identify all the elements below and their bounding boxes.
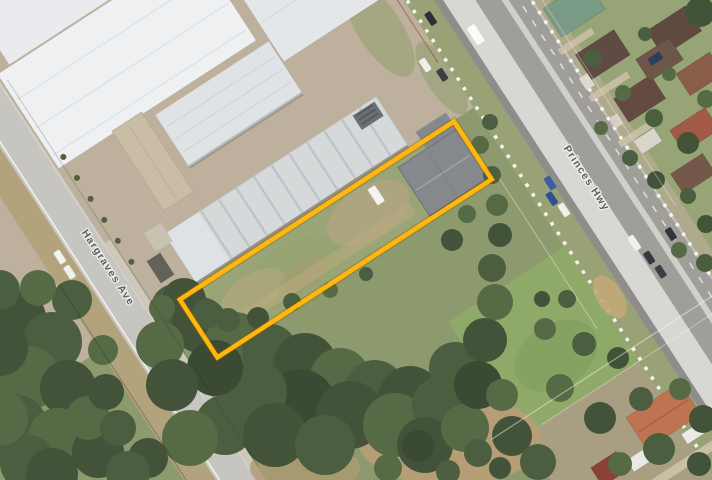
aerial-map: Hargraves Ave Princes Hwy [0,0,712,480]
aerial-photo-svg: Hargraves Ave Princes Hwy [0,0,712,480]
